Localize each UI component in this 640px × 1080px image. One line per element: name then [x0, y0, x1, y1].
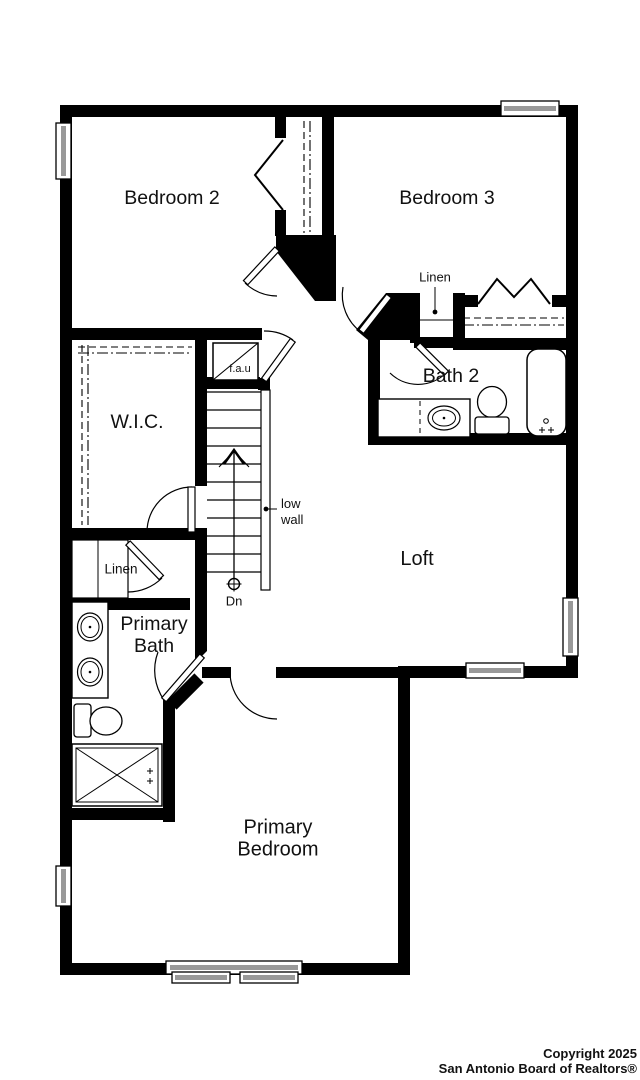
copyright-line1: Copyright 2025 [439, 1047, 637, 1062]
window-loft-right [563, 598, 578, 656]
primary-toilet-icon [74, 704, 91, 737]
door-wic [147, 487, 195, 532]
door-fau [262, 331, 296, 382]
floor-plan-drawing [0, 0, 640, 1080]
fau-label: f.a.u [229, 363, 250, 375]
window-primary-bottom-double [166, 961, 302, 983]
low-wall-label: low wall [281, 496, 319, 529]
closet-rod-lines [78, 121, 564, 525]
door-bedroom2 [243, 247, 279, 296]
low-wall [261, 390, 270, 590]
loft-label: Loft [400, 548, 433, 570]
window-bedroom2-left [56, 123, 71, 179]
window-primary-left [56, 866, 71, 906]
bath2-label: Bath 2 [423, 366, 479, 388]
linen-lower-label: Linen [104, 561, 137, 576]
copyright-line2: San Antonio Board of Realtors® [439, 1062, 637, 1077]
wic-label: W.I.C. [110, 412, 163, 434]
stairs [207, 390, 270, 592]
door-primary-bedroom [230, 667, 277, 719]
bedroom3-closet-bifold-icon [478, 279, 550, 304]
copyright-notice: Copyright 2025 San Antonio Board of Real… [439, 1047, 637, 1077]
stairs-down-label: Dn [226, 595, 243, 610]
interior-walls [60, 117, 578, 822]
window-bedroom3-top [501, 101, 559, 116]
bath2-fixtures [378, 349, 566, 437]
linen-upper-label: Linen [419, 271, 451, 286]
bedroom2-closet-bifold-icon [255, 140, 283, 210]
primary-bedroom-label: Primary Bedroom [220, 817, 336, 862]
bath2-toilet-icon [478, 387, 507, 418]
window-loft-bottom [466, 663, 524, 678]
primary-bath-label: Primary Bath [110, 614, 198, 658]
floor-plan: Bedroom 2 Bedroom 3 Linen Bath 2 W.I.C. … [0, 0, 640, 1080]
bedroom3-label: Bedroom 3 [399, 188, 494, 210]
primary-shower-icon [72, 744, 162, 806]
bedroom2-label: Bedroom 2 [124, 188, 219, 210]
